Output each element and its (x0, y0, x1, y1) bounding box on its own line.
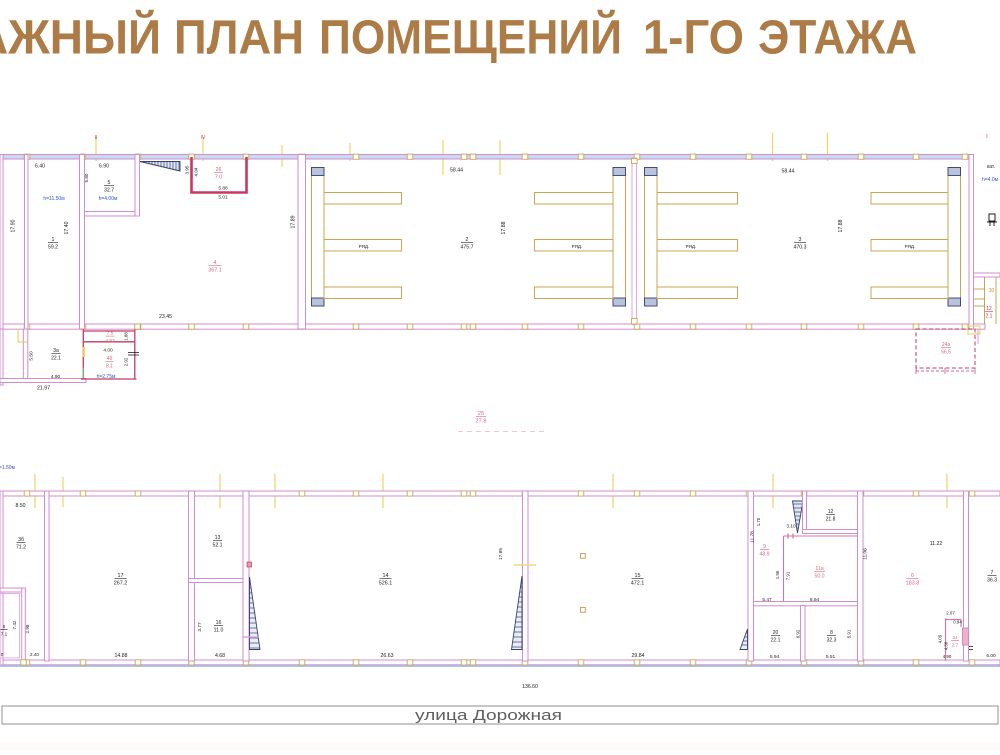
svg-text:1: 1 (52, 237, 55, 243)
svg-text:32.3: 32.3 (827, 638, 837, 644)
svg-text:4.92: 4.92 (105, 338, 115, 344)
svg-text:2.07: 2.07 (946, 611, 955, 616)
svg-text:48.9: 48.9 (759, 552, 769, 558)
svg-text:5.80: 5.80 (84, 173, 89, 182)
svg-text:2.92: 2.92 (124, 357, 129, 366)
svg-text:h=2.75м: h=2.75м (97, 374, 116, 380)
svg-text:3.77: 3.77 (197, 622, 203, 632)
svg-text:367.1: 367.1 (208, 268, 222, 274)
svg-text:2.98: 2.98 (25, 624, 30, 633)
svg-text:3а: 3а (53, 348, 59, 354)
svg-text:183.8: 183.8 (906, 581, 920, 587)
svg-text:12: 12 (828, 509, 834, 515)
svg-text:8: 8 (830, 630, 833, 636)
svg-text:2.40: 2.40 (30, 652, 39, 657)
svg-text:1.96: 1.96 (775, 570, 780, 579)
svg-text:22.1: 22.1 (771, 638, 781, 644)
svg-text:470.3: 470.3 (794, 245, 807, 251)
svg-text:0: 0 (1, 652, 4, 657)
svg-text:12: 12 (986, 306, 992, 312)
svg-text:h=4.00м: h=4.00м (99, 196, 118, 202)
svg-text:h=1.50м: h=1.50м (0, 465, 16, 471)
svg-text:24: 24 (952, 635, 958, 641)
svg-text:13: 13 (215, 535, 221, 541)
svg-text:7.91: 7.91 (786, 571, 791, 580)
svg-text:17.89: 17.89 (291, 215, 297, 228)
svg-text:11.78: 11.78 (750, 531, 756, 543)
svg-text:32.7: 32.7 (104, 188, 114, 194)
svg-text:4.30: 4.30 (944, 641, 949, 650)
svg-text:22.1: 22.1 (51, 356, 61, 362)
svg-text:17.85: 17.85 (498, 548, 504, 560)
svg-text:II: II (95, 135, 98, 141)
svg-text:4.68: 4.68 (215, 653, 225, 659)
svg-text:16: 16 (216, 620, 222, 626)
svg-text:526.1: 526.1 (379, 581, 393, 587)
svg-text:136.60: 136.60 (522, 684, 538, 690)
svg-text:5: 5 (3, 624, 6, 629)
svg-text:ЭТАЖА: ЭТАЖА (758, 12, 917, 65)
svg-text:29.84: 29.84 (632, 653, 645, 659)
svg-text:7.1: 7.1 (1, 632, 8, 637)
svg-text:5.51: 5.51 (826, 654, 836, 660)
svg-text:5.88: 5.88 (218, 186, 228, 192)
svg-text:5.01: 5.01 (218, 195, 228, 201)
svg-text:71.2: 71.2 (16, 545, 26, 551)
svg-text:26.63: 26.63 (381, 653, 394, 659)
svg-text:1.88: 1.88 (124, 332, 129, 341)
svg-text:7.0: 7.0 (215, 175, 222, 181)
svg-text:3б: 3б (18, 537, 24, 543)
svg-text:4б: 4б (107, 356, 113, 362)
svg-text:5.91: 5.91 (847, 629, 852, 638)
svg-text:11.0: 11.0 (214, 628, 224, 634)
svg-text:I: I (986, 134, 987, 140)
svg-text:6.90: 6.90 (99, 164, 109, 170)
svg-text:52.1: 52.1 (212, 543, 222, 549)
svg-text:7.42: 7.42 (12, 620, 17, 629)
svg-text:11.06: 11.06 (863, 548, 869, 560)
svg-text:9: 9 (763, 544, 766, 550)
svg-text:ПОМЕЩЕНИЙ: ПОМЕЩЕНИЙ (319, 10, 622, 65)
svg-text:h=11.50м: h=11.50м (43, 196, 65, 202)
svg-text:5.50: 5.50 (28, 351, 34, 361)
svg-text:17.40: 17.40 (64, 221, 70, 234)
svg-text:РЯД.: РЯД. (572, 244, 583, 249)
svg-text:улица Дорожная: улица Дорожная (415, 708, 562, 724)
svg-text:8.50: 8.50 (15, 503, 25, 509)
svg-text:17.88: 17.88 (501, 221, 507, 234)
svg-text:5.94: 5.94 (770, 654, 780, 660)
svg-text:267.2: 267.2 (114, 581, 128, 587)
svg-text:23.45: 23.45 (159, 314, 172, 320)
svg-text:11а: 11а (815, 566, 823, 572)
svg-text:0.94: 0.94 (953, 620, 962, 625)
svg-text:50.0: 50.0 (814, 574, 824, 580)
svg-text:кат.: кат. (987, 164, 995, 170)
svg-text:17: 17 (118, 573, 124, 579)
svg-text:25: 25 (478, 411, 484, 417)
svg-text:56.5: 56.5 (941, 350, 951, 356)
svg-text:6.40: 6.40 (35, 164, 45, 170)
svg-text:4.90: 4.90 (943, 654, 952, 659)
svg-text:4.04: 4.04 (194, 167, 199, 176)
svg-text:8.1: 8.1 (106, 364, 113, 370)
svg-text:59.2: 59.2 (48, 245, 58, 251)
svg-text:IV: IV (201, 135, 206, 141)
svg-text:27.8: 27.8 (476, 419, 487, 425)
svg-text:20: 20 (773, 630, 779, 636)
svg-text:4.00: 4.00 (103, 348, 113, 354)
svg-text:58.44: 58.44 (450, 168, 463, 174)
svg-text:АЖНЫЙ: АЖНЫЙ (0, 10, 161, 65)
svg-text:4: 4 (214, 260, 217, 266)
svg-text:7: 7 (991, 570, 994, 576)
svg-text:2.1: 2.1 (986, 314, 993, 320)
svg-text:58.44: 58.44 (782, 169, 795, 175)
svg-text:26: 26 (216, 167, 222, 173)
svg-text:РЯД.: РЯД. (359, 244, 370, 249)
svg-text:17.88: 17.88 (838, 219, 844, 232)
svg-text:15: 15 (635, 573, 641, 579)
svg-text:17.90: 17.90 (11, 219, 17, 232)
svg-text:ПЛАН: ПЛАН (174, 12, 304, 65)
svg-text:6.92: 6.92 (796, 629, 801, 638)
svg-text:475.7: 475.7 (461, 245, 474, 251)
svg-text:21.97: 21.97 (37, 386, 50, 392)
svg-text:30: 30 (989, 288, 995, 294)
svg-text:2.7: 2.7 (952, 643, 959, 649)
svg-text:h=4.0м: h=4.0м (982, 177, 999, 183)
svg-text:14.88: 14.88 (115, 653, 128, 659)
svg-text:6: 6 (911, 573, 914, 579)
svg-text:1.70: 1.70 (756, 517, 761, 526)
svg-text:6.00: 6.00 (986, 653, 996, 659)
svg-text:4.90: 4.90 (51, 374, 61, 380)
svg-text:3: 3 (799, 237, 802, 243)
svg-text:11.22: 11.22 (930, 541, 943, 547)
svg-text:472.1: 472.1 (631, 581, 645, 587)
svg-text:14: 14 (383, 573, 389, 579)
svg-text:2: 2 (466, 237, 469, 243)
svg-text:7.5: 7.5 (107, 331, 114, 337)
svg-text:4.05: 4.05 (938, 634, 943, 643)
svg-text:РЯД.: РЯД. (686, 244, 697, 249)
svg-text:1-ГО: 1-ГО (643, 12, 744, 65)
svg-text:РЯД.: РЯД. (905, 244, 916, 249)
svg-text:36.3: 36.3 (987, 578, 997, 584)
svg-text:24а: 24а (942, 342, 951, 348)
svg-text:21.8: 21.8 (826, 517, 836, 523)
svg-text:5: 5 (108, 180, 111, 186)
svg-text:3.10: 3.10 (786, 524, 796, 530)
svg-text:3.95: 3.95 (185, 165, 190, 174)
